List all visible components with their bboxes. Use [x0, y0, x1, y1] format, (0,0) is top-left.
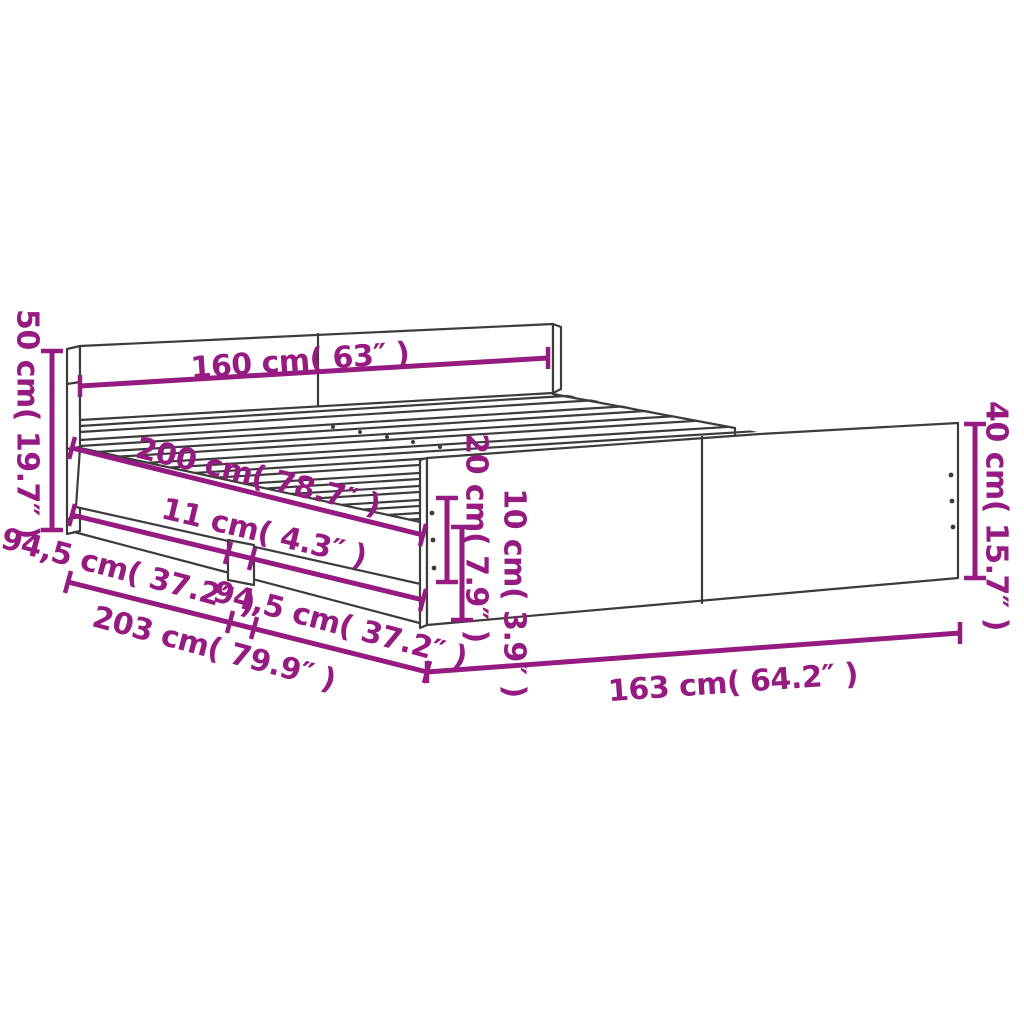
slat-screw-dot	[411, 440, 415, 444]
screw-dot	[950, 499, 955, 504]
dimension-footboard-height: 40 cm( 15.7″ )	[964, 401, 1014, 631]
screw-dot	[951, 525, 956, 530]
screw-dot	[949, 473, 954, 478]
dim-label-total-width: 163 cm( 64.2″ )	[607, 657, 859, 709]
screw-dot	[430, 511, 435, 516]
slat-screw-dot	[438, 445, 442, 449]
dimension-headboard-height: 50 cm( 19.7″ )	[10, 309, 64, 539]
product-dimension-image: 50 cm( 19.7″ ) 160 cm( 63″ ) 200 cm( 78.…	[0, 0, 1024, 1024]
slat-screw-dot	[385, 435, 389, 439]
dim-label-footboard-height: 40 cm( 15.7″ )	[979, 401, 1014, 631]
screw-dot	[432, 566, 437, 571]
screw-dot	[431, 538, 436, 543]
headboard-right-edge	[553, 324, 561, 393]
bed-frame-dimension-diagram: 50 cm( 19.7″ ) 160 cm( 63″ ) 200 cm( 78.…	[0, 0, 1024, 1024]
slat-screw-dot	[331, 425, 335, 429]
dim-label-headboard-height: 50 cm( 19.7″ )	[10, 309, 45, 539]
slat-screw-dot	[358, 430, 362, 434]
dim-label-floor-clearance: 10 cm( 3.9″ )	[497, 488, 532, 698]
